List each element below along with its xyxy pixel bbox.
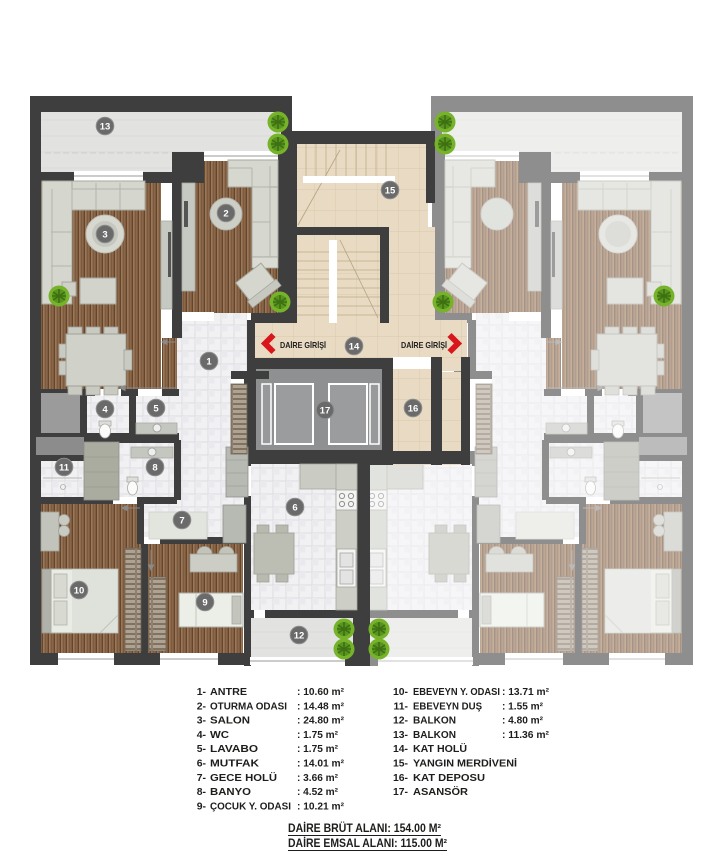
- svg-text:7: 7: [179, 516, 184, 527]
- svg-text:4-: 4-: [197, 730, 207, 741]
- svg-text:: 14.01 m²: : 14.01 m²: [297, 759, 345, 770]
- svg-text:: 4.52 m²: : 4.52 m²: [297, 787, 339, 798]
- svg-text:5: 5: [153, 404, 159, 415]
- svg-text:KAT HOLÜ: KAT HOLÜ: [413, 742, 467, 755]
- svg-text:15: 15: [385, 186, 396, 197]
- svg-text:1: 1: [206, 357, 212, 368]
- svg-text:16-: 16-: [393, 773, 409, 784]
- svg-text:5-: 5-: [197, 744, 207, 755]
- svg-text:12: 12: [294, 631, 305, 642]
- svg-text:6: 6: [292, 503, 297, 514]
- svg-text:10-: 10-: [393, 687, 409, 698]
- svg-text:6-: 6-: [197, 759, 207, 770]
- svg-text:EBEVEYN Y. ODASI: EBEVEYN Y. ODASI: [413, 687, 500, 698]
- svg-text:EBEVEYN DUŞ: EBEVEYN DUŞ: [413, 701, 482, 712]
- svg-text:13-: 13-: [393, 730, 409, 741]
- svg-text:ÇOCUK Y. ODASI: ÇOCUK Y. ODASI: [210, 801, 291, 812]
- svg-text:GECE HOLÜ: GECE HOLÜ: [210, 771, 277, 784]
- svg-text:: 1.75 m²: : 1.75 m²: [297, 744, 339, 755]
- svg-text:OTURMA ODASI: OTURMA ODASI: [210, 701, 287, 712]
- svg-text:17: 17: [320, 406, 331, 417]
- svg-text:3-: 3-: [197, 716, 207, 727]
- svg-text:11: 11: [59, 463, 70, 474]
- svg-text:2-: 2-: [197, 701, 207, 712]
- svg-text:15-: 15-: [393, 759, 409, 770]
- svg-text:9-: 9-: [197, 801, 207, 812]
- svg-text:: 24.80 m²: : 24.80 m²: [297, 716, 345, 727]
- svg-text:ANTRE: ANTRE: [210, 687, 247, 698]
- svg-text:YANGIN MERDİVENİ: YANGIN MERDİVENİ: [413, 757, 517, 770]
- svg-text:LAVABO: LAVABO: [210, 744, 258, 755]
- svg-text:SALON: SALON: [210, 716, 250, 727]
- svg-text:MUTFAK: MUTFAK: [210, 759, 260, 770]
- svg-text:13: 13: [100, 122, 111, 133]
- svg-text:: 13.71 m²: : 13.71 m²: [502, 687, 550, 698]
- svg-text:17-: 17-: [393, 787, 409, 798]
- svg-text:10: 10: [74, 586, 85, 597]
- svg-text:16: 16: [408, 404, 419, 415]
- svg-text:4: 4: [102, 405, 108, 416]
- svg-text:: 3.66 m²: : 3.66 m²: [297, 773, 339, 784]
- svg-text:8-: 8-: [197, 787, 207, 798]
- svg-text:14-: 14-: [393, 744, 409, 755]
- svg-text:DAİRE BRÜT ALANI: 154.00 M²: DAİRE BRÜT ALANI: 154.00 M²: [288, 822, 441, 835]
- svg-text:11-: 11-: [394, 701, 409, 712]
- svg-text:3: 3: [102, 230, 107, 241]
- svg-text:: 1.55 m²: : 1.55 m²: [502, 701, 544, 712]
- svg-text:KAT DEPOSU: KAT DEPOSU: [413, 773, 485, 784]
- svg-text:DAİRE GİRİŞİ: DAİRE GİRİŞİ: [401, 340, 447, 350]
- svg-text:: 10.21 m²: : 10.21 m²: [297, 801, 345, 812]
- svg-text:BANYO: BANYO: [210, 787, 251, 798]
- svg-text:: 11.36 m²: : 11.36 m²: [502, 730, 550, 741]
- svg-text:: 1.75 m²: : 1.75 m²: [297, 730, 339, 741]
- svg-text:ASANSÖR: ASANSÖR: [413, 785, 469, 798]
- svg-text:: 10.60 m²: : 10.60 m²: [297, 687, 345, 698]
- svg-text:: 14.48 m²: : 14.48 m²: [297, 701, 345, 712]
- svg-text:DAİRE GİRİŞİ: DAİRE GİRİŞİ: [280, 340, 326, 350]
- svg-text:8: 8: [152, 463, 157, 474]
- svg-text:WC: WC: [210, 730, 230, 741]
- svg-text:DAİRE EMSAL ALANI: 115.00 M²: DAİRE EMSAL ALANI: 115.00 M²: [288, 837, 447, 850]
- svg-text:12-: 12-: [393, 716, 409, 727]
- svg-text:9: 9: [202, 598, 207, 609]
- svg-text:BALKON: BALKON: [413, 730, 456, 741]
- svg-text:2: 2: [223, 209, 228, 220]
- svg-text:7-: 7-: [197, 773, 207, 784]
- svg-text:14: 14: [349, 342, 360, 353]
- svg-text:: 4.80 m²: : 4.80 m²: [502, 716, 544, 727]
- svg-text:BALKON: BALKON: [413, 716, 456, 727]
- svg-text:1-: 1-: [197, 687, 207, 698]
